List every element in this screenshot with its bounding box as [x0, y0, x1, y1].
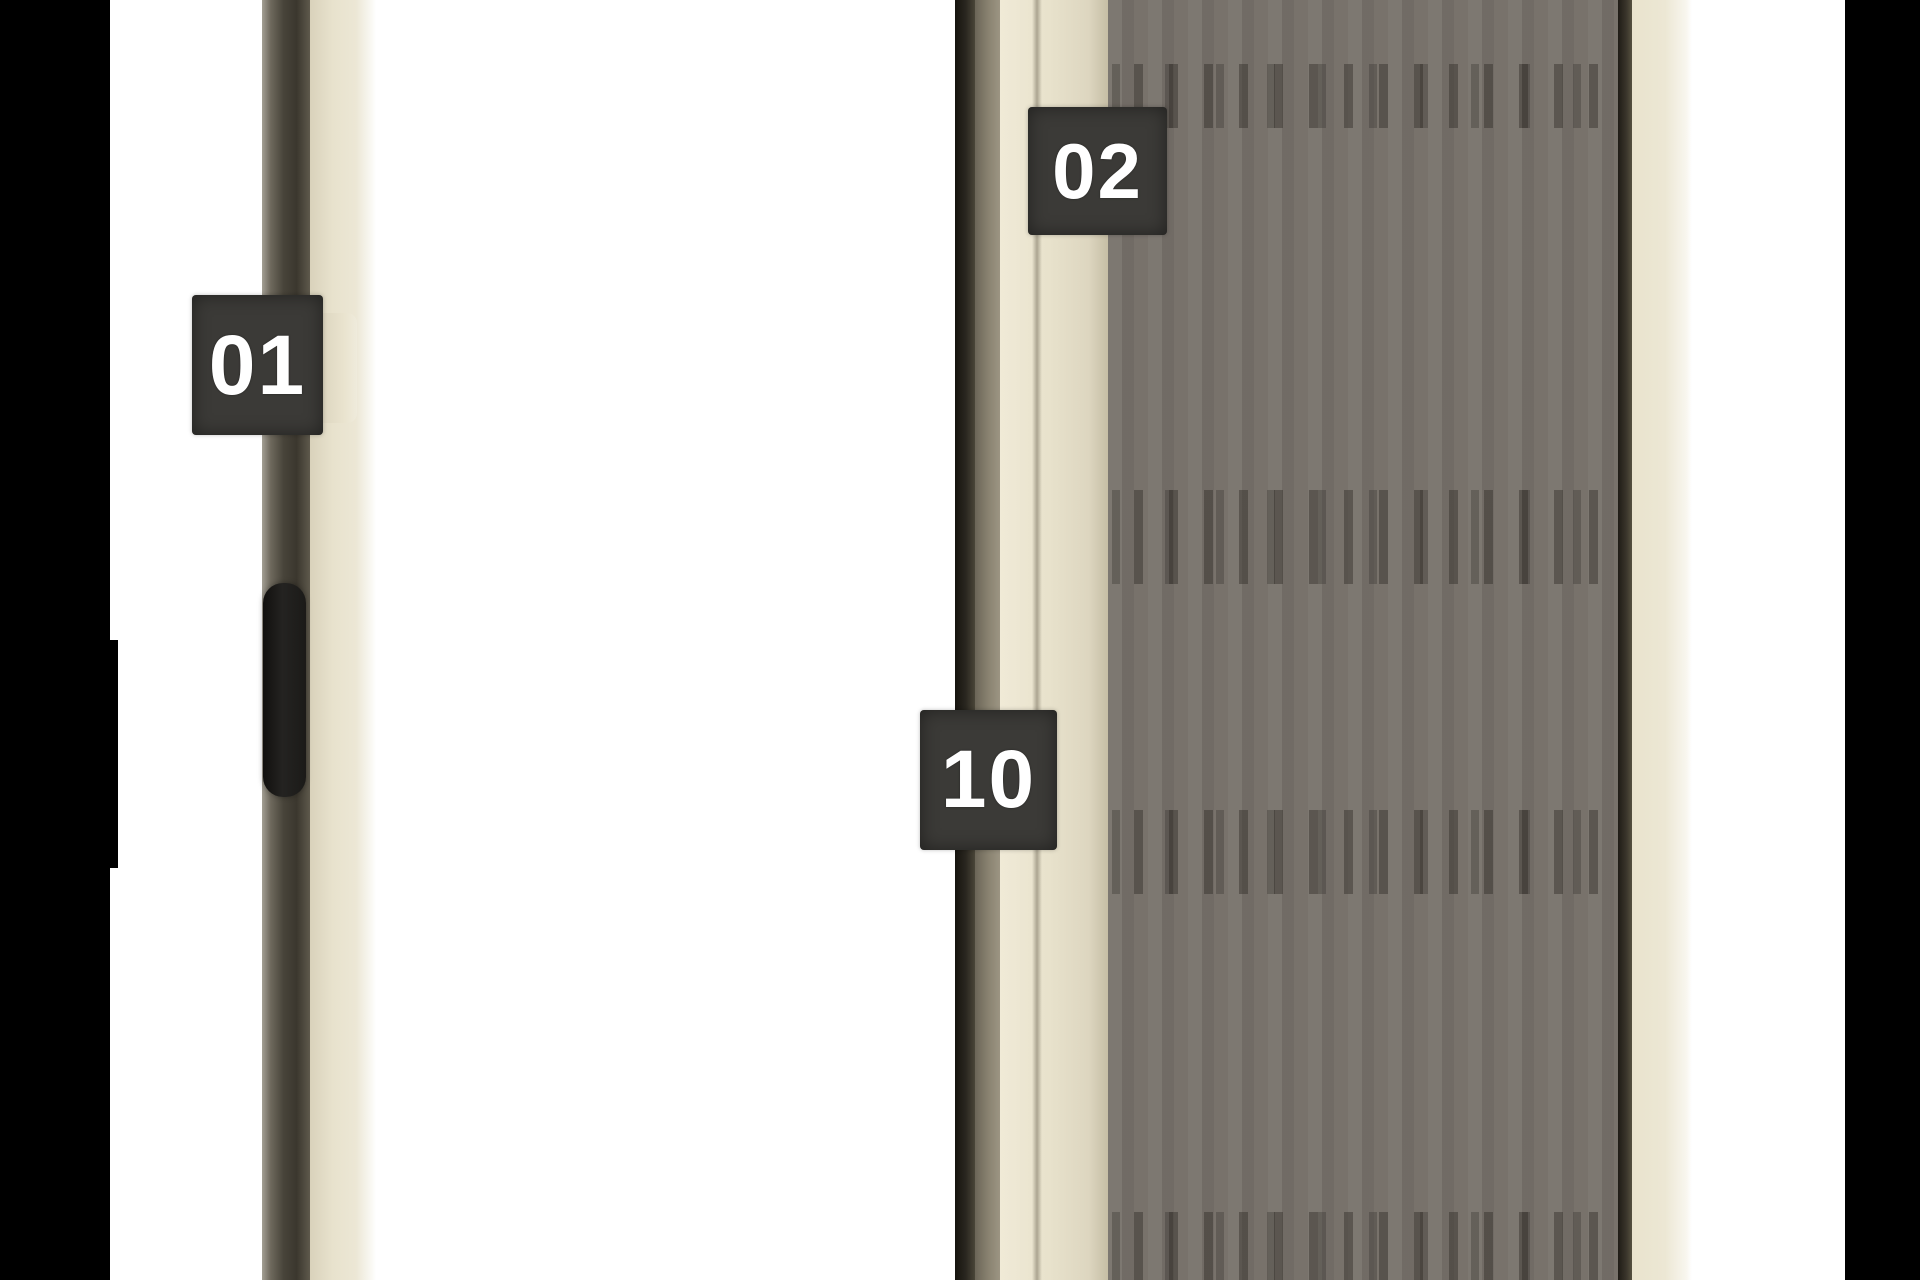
callout-badge-10[interactable]: 10	[920, 710, 1057, 850]
frame-right-cream-face	[1632, 0, 1692, 1280]
rail-02-olive-face	[975, 0, 1000, 1280]
right-cutoff-panel	[1845, 0, 1920, 1280]
callout-badge-02[interactable]: 02	[1028, 107, 1167, 235]
rail-01-housing-nub	[323, 313, 357, 423]
left-cutoff-panel-handle-bump	[108, 640, 118, 868]
rail-01-handle	[263, 583, 306, 797]
mesh-texture-band	[1108, 64, 1620, 128]
product-diagram-canvas: 01 02 10	[0, 0, 1920, 1280]
mesh-right-frame-edge	[1618, 0, 1632, 1280]
callout-badge-01[interactable]: 01	[192, 295, 323, 435]
mesh-texture-band	[1108, 490, 1620, 584]
rail-01-cream-face	[310, 0, 376, 1280]
pleated-mesh-panel	[1108, 0, 1620, 1280]
mesh-texture-band	[1108, 1212, 1620, 1280]
left-cutoff-panel	[0, 0, 110, 1280]
rail-02-dark-edge	[955, 0, 975, 1280]
mesh-texture-band	[1108, 810, 1620, 894]
